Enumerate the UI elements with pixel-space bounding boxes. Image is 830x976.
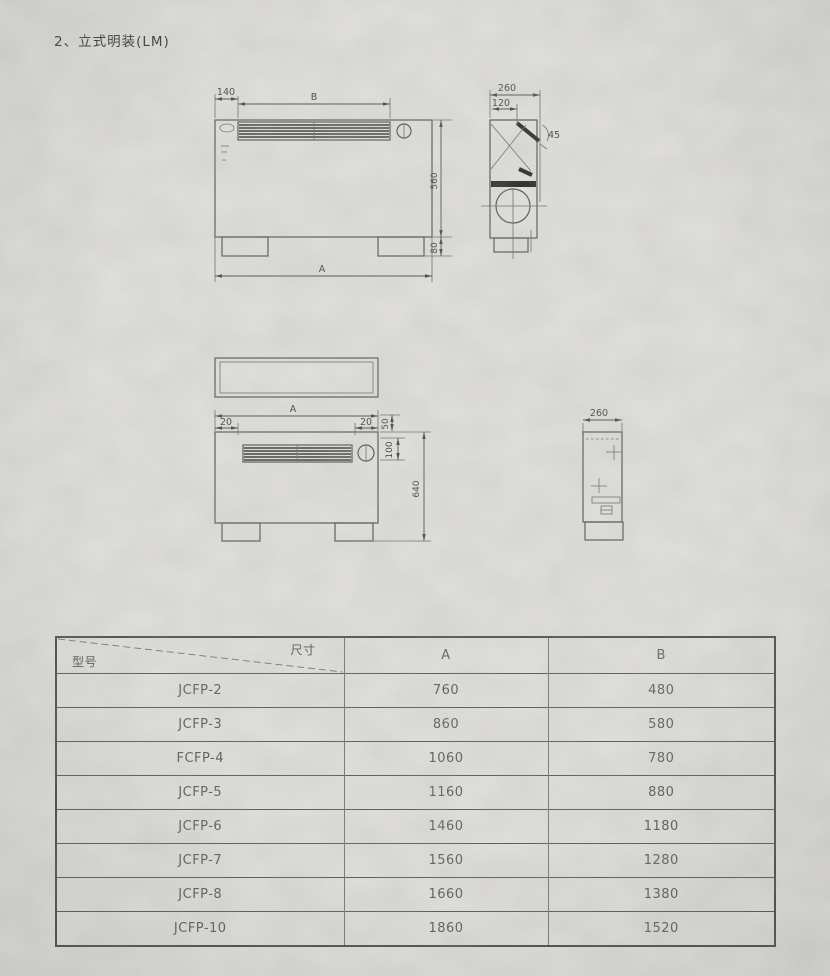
dimension-arrowhead [439,237,442,244]
plan-view-drawing [215,358,378,397]
header-col-a: A [344,637,548,674]
dimension-arrowhead [238,102,245,105]
foot-right [378,237,424,256]
dimension-arrowhead [371,426,378,429]
dim-a-cell: 860 [344,708,548,742]
foot-right-lower [335,523,373,541]
model-cell: JCFP-8 [56,878,344,912]
foot-side [494,238,528,252]
nameplate-marks [220,124,234,160]
dimension-arrowhead [383,102,390,105]
dimension-arrowhead [490,93,497,96]
dimension-arrowhead [215,274,222,277]
dim-label-120: 120 [492,98,510,109]
control-knob-lower-icon [358,445,374,461]
dimension-arrowhead [396,453,399,460]
dim-label-20-left: 20 [220,417,232,428]
model-cell: JCFP-6 [56,810,344,844]
dim-b-cell: 1180 [548,810,775,844]
dimension-arrowhead [215,426,222,429]
unit-body-lower [215,432,378,523]
model-cell: JCFP-2 [56,674,344,708]
drain-outlet-box [601,506,612,514]
header-model-label: 型号 [72,653,97,670]
model-cell: JCFP-7 [56,844,344,878]
dimension-arrowhead [355,426,362,429]
dim-b-cell: 780 [548,742,775,776]
dim-label-640: 640 [412,480,422,497]
scanned-catalog-page: 2、立式明装(LM) [0,0,830,976]
dim-b-cell: 480 [548,674,775,708]
header-size-label: 尺寸 [290,641,315,658]
dim-label-260: 260 [498,83,516,94]
outlet-grille [238,122,390,140]
dim-label-260-lower: 260 [590,408,608,419]
dimension-arrowhead [422,534,425,541]
front-view-drawing: 140 B 560 80 A [215,87,452,282]
dimension-arrowhead [510,107,517,110]
table-header-row: 尺寸 型号 A B [56,637,775,674]
model-cell: JCFP-3 [56,708,344,742]
dimension-arrowhead [231,426,238,429]
dim-label-20-right: 20 [360,417,372,428]
dim-a-cell: 1160 [344,776,548,810]
foot-side-lower [585,522,623,540]
model-cell: FCFP-4 [56,742,344,776]
control-knob-icon [397,124,411,138]
dimension-arrowhead [422,432,425,439]
front-view-lower-drawing: A 20 20 50 100 640 [215,404,431,541]
dim-b-cell: 880 [548,776,775,810]
model-cell: JCFP-10 [56,912,344,947]
dimension-arrowhead [583,418,590,421]
dim-label-100: 100 [385,441,395,458]
drain-outlet-bar [592,497,620,503]
table-row: JCFP-2 760 480 [56,674,775,708]
dim-label-50: 50 [381,418,391,430]
dim-b-cell: 580 [548,708,775,742]
technical-drawings: 140 B 560 80 A [0,0,830,620]
pipe-connection-mark-mid [591,478,607,493]
dimension-arrowhead [615,418,622,421]
dim-a-cell: 1060 [344,742,548,776]
unit-body-side-lower [583,432,622,522]
table-row: JCFP-8 1660 1380 [56,878,775,912]
table-row: JCFP-5 1160 880 [56,776,775,810]
table-row: JCFP-3 860 580 [56,708,775,742]
dim-label-A: A [319,264,326,275]
pipe-connection-mark-top [606,445,621,460]
dim-label-140: 140 [217,87,235,98]
foot-left [222,237,268,256]
dim-label-45: 45 [548,130,560,141]
dimension-arrowhead [371,414,378,417]
side-view-lower-drawing: 260 [583,408,623,540]
table-row: FCFP-4 1060 780 [56,742,775,776]
dim-label-560: 560 [430,172,440,189]
foot-left-lower [222,523,260,541]
dim-b-cell: 1380 [548,878,775,912]
dim-label-80: 80 [430,242,440,254]
dim-a-cell: 1860 [344,912,548,947]
dimensions-table: 尺寸 型号 A B JCFP-2 760 480 JCFP-3 860 580 … [55,636,776,947]
header-col-b: B [548,637,775,674]
dim-a-cell: 760 [344,674,548,708]
model-cell: JCFP-5 [56,776,344,810]
dim-a-cell: 1560 [344,844,548,878]
table-row: JCFP-10 1860 1520 [56,912,775,947]
table-row: JCFP-7 1560 1280 [56,844,775,878]
dimension-arrowhead [425,274,432,277]
dim-a-cell: 1660 [344,878,548,912]
table-row: JCFP-6 1460 1180 [56,810,775,844]
dim-label-A-lower: A [290,404,297,415]
dim-b-cell: 1520 [548,912,775,947]
dimension-arrowhead [439,230,442,237]
header-model-size-cell: 尺寸 型号 [56,637,344,674]
dimension-arrowhead [215,414,222,417]
unit-body-side [490,120,537,238]
side-view-drawing: 260 120 45 [481,83,560,259]
dimension-arrowhead [439,120,442,127]
drain-pan [491,181,536,187]
dim-a-cell: 1460 [344,810,548,844]
dimension-arrowhead [396,438,399,445]
dimension-arrowhead [533,93,540,96]
outlet-grille-lower [243,445,352,462]
dim-b-cell: 1280 [548,844,775,878]
dim-label-B: B [311,92,318,103]
